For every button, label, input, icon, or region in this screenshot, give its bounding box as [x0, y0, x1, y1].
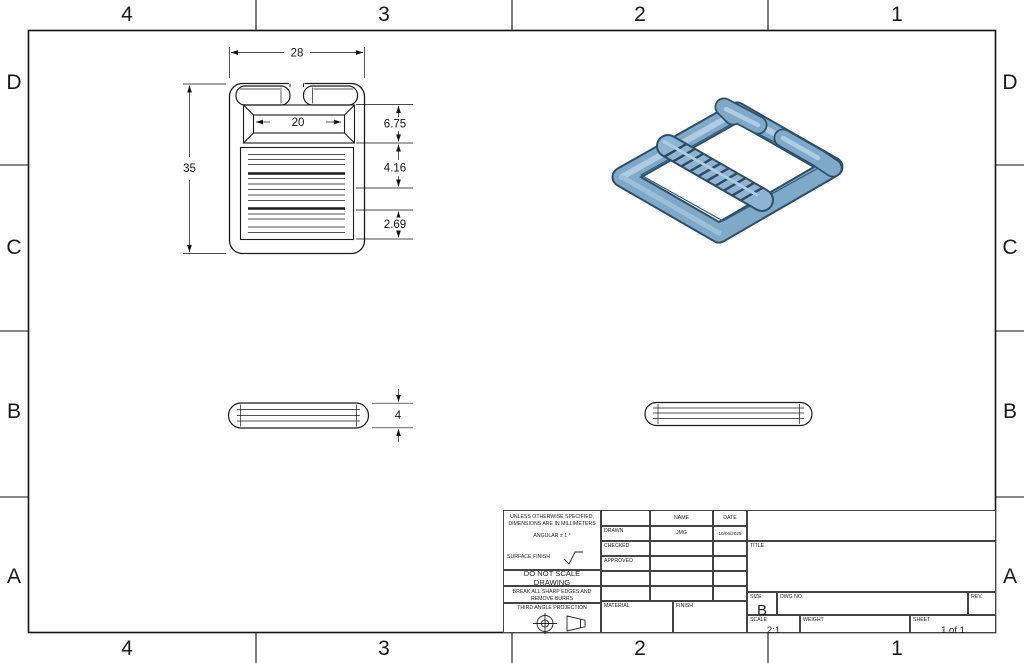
empty-row-2-date: [713, 586, 747, 601]
zone-col-bottom-1: 1: [880, 636, 914, 662]
size-cell: SIZE B: [747, 592, 777, 615]
zone-col-top-3: 3: [367, 2, 401, 28]
break-edges-line2: REMOVE BURRS: [506, 596, 598, 603]
drawing-sheet: 28 35 20 6.75 4.16 2.69: [0, 0, 1024, 663]
dwg-no-cell: DWG NO.: [777, 592, 968, 615]
dim-side-thickness: 4: [395, 410, 402, 422]
dim-right-1: 6.75: [384, 119, 406, 131]
row-label-checked: CHECKED: [601, 541, 650, 556]
zone-row-left-b: B: [0, 399, 31, 425]
rev-label: REV.: [971, 594, 983, 600]
iso-hook-arms: [724, 107, 833, 168]
zone-row-left-c: C: [0, 235, 31, 261]
dim-front-height: 35: [183, 163, 196, 175]
zone-row-right-b: B: [993, 399, 1024, 425]
zone-col-top-2: 2: [623, 2, 657, 28]
zone-col-top-4: 4: [110, 2, 144, 28]
surface-finish-icon: [562, 551, 584, 566]
checked-name-cell: [650, 541, 713, 556]
front-view-dim-text: 28 35 20 6.75 4.16 2.69: [183, 48, 409, 232]
size-label: SIZE: [750, 594, 762, 600]
sheet-label: SHEET: [913, 617, 930, 623]
front-view-dimensions: [183, 47, 413, 254]
approved-name-cell: [650, 556, 713, 571]
checked-label: CHECKED: [604, 543, 629, 549]
date-header-text: DATE: [723, 515, 736, 522]
empty-row-2-label: [601, 586, 650, 601]
drawn-name-value: JMG: [676, 530, 687, 537]
empty-row-2-name: [650, 586, 713, 601]
sheet-value: 1 of 1: [913, 625, 993, 637]
sheet-cell: SHEET 1 of 1: [910, 615, 996, 633]
side-view-right: [645, 403, 812, 426]
front-view: [230, 82, 365, 254]
material-cell: MATERIAL: [601, 601, 673, 633]
scale-cell: SCALE 2:1: [747, 615, 800, 633]
checked-date-cell: [713, 541, 747, 556]
zone-row-right-d: D: [993, 70, 1024, 96]
title-block: UNLESS OTHERWISE SPECIFIED, DIMENSIONS A…: [503, 510, 996, 633]
zone-row-left-d: D: [0, 70, 31, 96]
empty-row-1-label: [601, 571, 650, 586]
iso-ribbed-bar: [664, 142, 762, 201]
finish-label: FINISH: [676, 603, 693, 609]
scale-label: SCALE: [750, 617, 767, 623]
row-label-drawn: DRAWN: [601, 526, 650, 541]
title-label: TITLE: [750, 543, 764, 549]
rev-cell: REV.: [968, 592, 996, 615]
isometric-view: [622, 107, 833, 233]
approved-date-cell: [713, 556, 747, 571]
drawn-label: DRAWN: [604, 528, 623, 534]
weight-label: WEIGHT: [803, 617, 824, 623]
third-angle-projection-icon: [507, 612, 597, 635]
drawn-name-cell: JMG: [650, 526, 713, 541]
finish-cell: FINISH: [673, 601, 747, 633]
header-empty: [601, 510, 650, 526]
dim-right-2: 4.16: [384, 163, 406, 175]
top-right-empty-cell: [747, 510, 996, 541]
surface-finish-label: SURFACE FINISH: [507, 554, 550, 561]
empty-row-1-date: [713, 571, 747, 586]
col-header-date: DATE: [713, 510, 747, 526]
zone-col-bottom-4: 4: [110, 636, 144, 662]
zone-col-bottom-2: 2: [623, 636, 657, 662]
zone-row-right-c: C: [993, 235, 1024, 261]
do-not-scale-note: DO NOT SCALE DRAWING: [503, 570, 601, 586]
row-label-approved: APPROVED: [601, 556, 650, 571]
break-edges-line1: BREAK ALL SHARP EDGES AND: [506, 589, 598, 596]
title-cell: TITLE: [747, 541, 996, 592]
approved-label: APPROVED: [604, 558, 633, 564]
name-header-text: NAME: [674, 515, 689, 522]
spec-line-2: DIMENSIONS ARE IN MILLIMETERS: [506, 521, 598, 528]
angular-tolerance: ANGULAR ± 1 °: [506, 533, 598, 540]
dwg-no-label: DWG NO.: [780, 594, 803, 600]
material-label: MATERIAL: [604, 603, 630, 609]
scale-value: 2:1: [750, 625, 797, 637]
zone-col-top-1: 1: [880, 2, 914, 28]
dim-front-inner-width: 20: [292, 117, 305, 129]
weight-cell: WEIGHT: [800, 615, 910, 633]
drawn-date-value: 10/06/2025: [719, 531, 742, 537]
tolerance-notes: UNLESS OTHERWISE SPECIFIED, DIMENSIONS A…: [503, 510, 601, 570]
do-not-scale-text: DO NOT SCALE DRAWING: [506, 569, 598, 588]
side-view-left: [229, 403, 369, 428]
drawn-date-cell: 10/06/2025: [713, 526, 747, 541]
zone-col-bottom-3: 3: [367, 636, 401, 662]
break-edges-note: BREAK ALL SHARP EDGES AND REMOVE BURRS: [503, 586, 601, 603]
dim-front-width: 28: [291, 48, 304, 60]
spec-line-1: UNLESS OTHERWISE SPECIFIED,: [506, 514, 598, 521]
projection-cell: THIRD ANGLE PROJECTION: [503, 603, 601, 633]
zone-row-left-a: A: [0, 564, 31, 590]
zone-row-right-a: A: [993, 564, 1024, 590]
dim-right-3: 2.69: [384, 219, 406, 231]
empty-row-1-name: [650, 571, 713, 586]
col-header-name: NAME: [650, 510, 713, 526]
